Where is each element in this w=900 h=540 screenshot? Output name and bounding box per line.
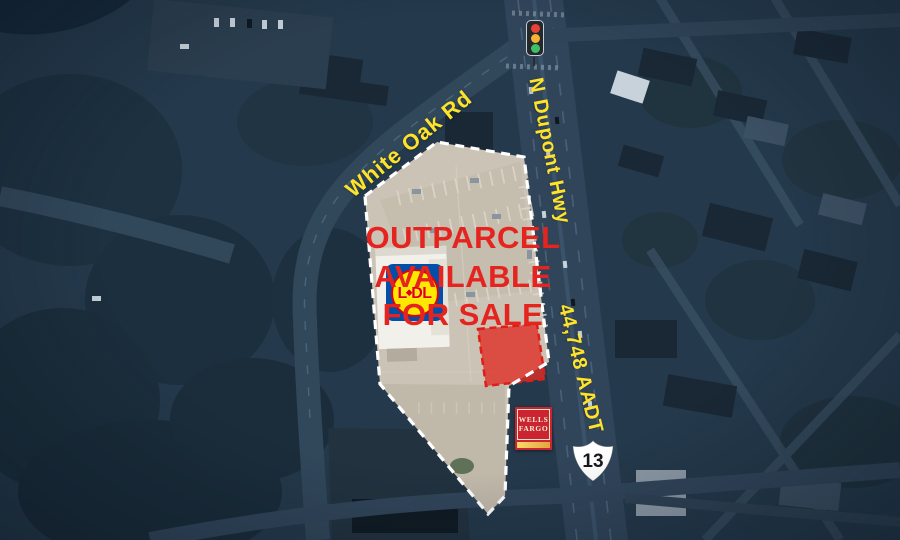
route-shield-number: 13 xyxy=(582,451,603,472)
traffic-light-pole xyxy=(533,57,535,66)
red-light xyxy=(531,24,540,33)
wells-fargo-line-2: FARGO xyxy=(519,425,549,434)
wells-fargo-sign-text: WELLS FARGO xyxy=(517,409,550,440)
green-light xyxy=(531,44,540,53)
traffic-light-icon xyxy=(526,20,544,56)
site-aerial-map: L◆DL OUTPARCEL AVAILABLE FOR SALE White … xyxy=(0,0,900,540)
yellow-light xyxy=(531,34,540,43)
wells-fargo-gold-strip xyxy=(517,442,550,448)
headline-line-2: AVAILABLE xyxy=(332,258,594,297)
wells-fargo-sign: WELLS FARGO xyxy=(515,407,552,450)
us-route-shield-icon: 13 xyxy=(570,437,616,485)
